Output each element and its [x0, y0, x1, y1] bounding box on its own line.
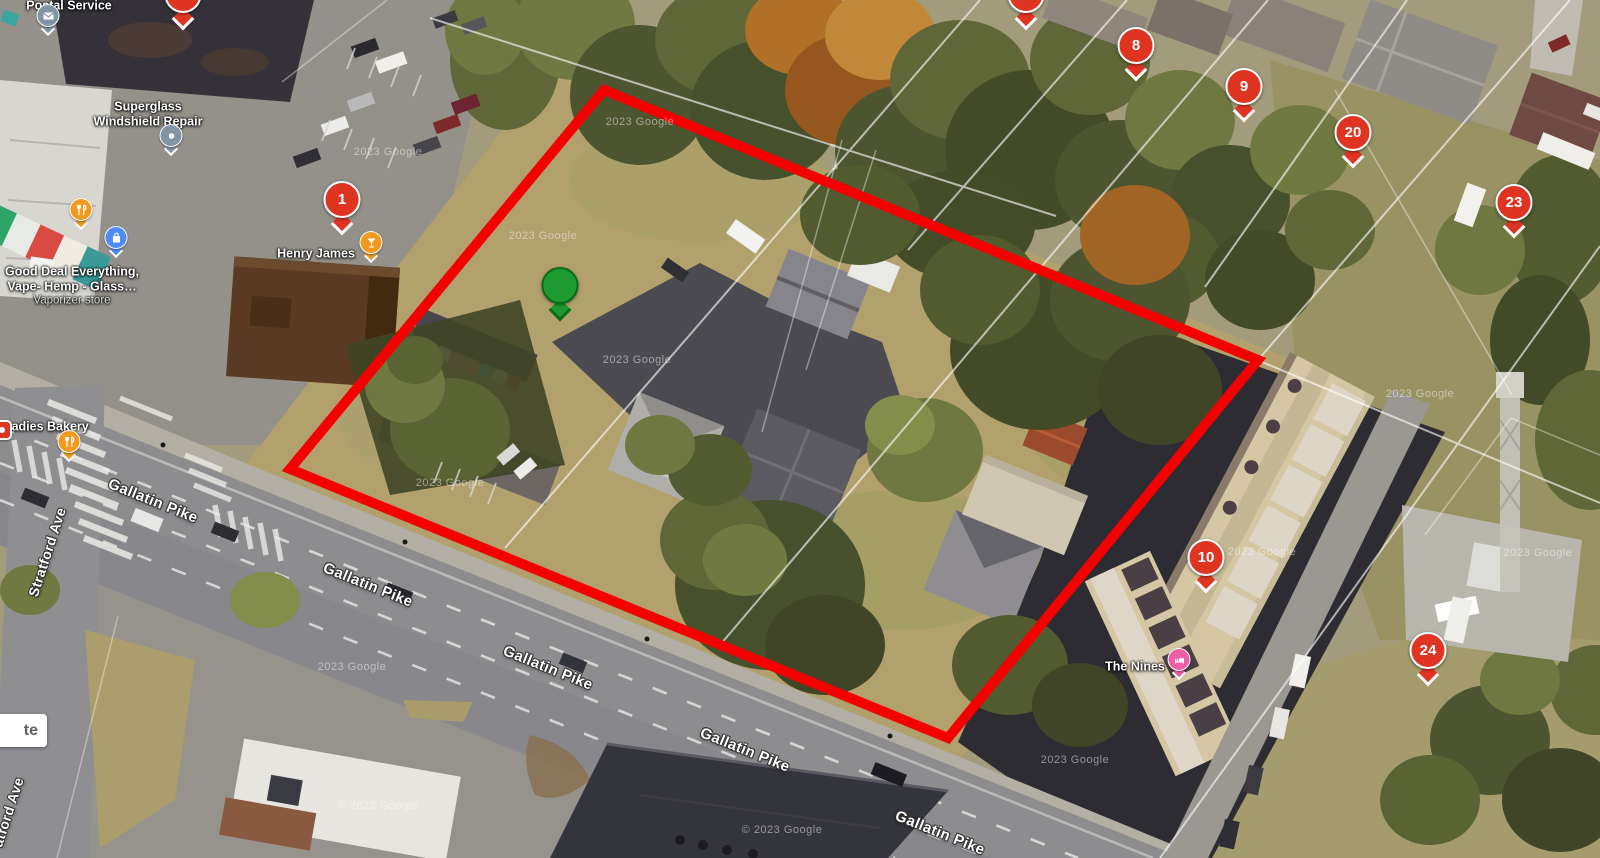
poi-label-henry-james[interactable]: Henry James: [277, 247, 355, 262]
poi-gooddeal-line2: Vape- Hemp - Glass…: [5, 279, 139, 294]
street-label-gallatin-3: Gallatin Pike: [501, 642, 596, 693]
google-watermark: 2023 Google: [1386, 388, 1455, 400]
map-pin-20[interactable]: 20: [1334, 114, 1372, 166]
map-pin-1[interactable]: 1: [323, 181, 361, 233]
poi-superglass-line1: Superglass: [94, 99, 203, 114]
street-label-gallatin-5: Gallatin Pike: [893, 807, 988, 858]
google-watermark: 2023 Google: [509, 230, 578, 242]
poi-gooddeal-line1: Good Deal Everything,: [5, 264, 139, 279]
google-watermark: © 2023 Google: [338, 800, 419, 812]
poi-pin-the-nines-lodging[interactable]: [1167, 648, 1191, 680]
street-label-gallatin-1: Gallatin Pike: [106, 475, 201, 526]
restaurant-icon: [75, 204, 87, 216]
map-pin-24[interactable]: 24: [1409, 632, 1447, 684]
map-pin-23[interactable]: 23: [1495, 184, 1533, 236]
google-watermark: 2023 Google: [1228, 546, 1297, 558]
poi-pin-postal[interactable]: [36, 4, 60, 36]
map-canvas[interactable]: 2023 Google 2023 Google 2023 Google 2023…: [0, 0, 1600, 858]
street-label-stratford: Stratford Ave: [25, 505, 69, 598]
poi-pin-superglass[interactable]: [159, 124, 183, 156]
mail-icon: [42, 10, 54, 22]
google-watermark: 2023 Google: [606, 116, 675, 128]
map-pin-8[interactable]: 8: [1117, 27, 1155, 79]
google-watermark: 2023 Google: [1041, 754, 1110, 766]
cocktail-icon: [365, 237, 377, 249]
poi-pin-sadies-restaurant[interactable]: [57, 430, 81, 462]
google-watermark: 2023 Google: [1504, 547, 1573, 559]
street-label-stratford-partial: atford Ave: [0, 775, 27, 849]
street-label-gallatin-4: Gallatin Pike: [698, 724, 793, 775]
google-watermark: 2023 Google: [354, 146, 423, 158]
street-label-gallatin-2: Gallatin Pike: [321, 559, 416, 610]
poi-pin-shopping[interactable]: [104, 226, 128, 258]
map-pin-10[interactable]: 10: [1187, 539, 1225, 591]
poi-gooddeal-subtitle: Vaporizer store: [5, 294, 139, 308]
poi-pin-partial-left[interactable]: [0, 420, 12, 440]
poi-label-the-nines[interactable]: The Nines: [1105, 660, 1165, 675]
poi-label-superglass[interactable]: Superglass Windshield Repair: [94, 99, 203, 129]
shopping-bag-icon: [110, 232, 122, 244]
dot-icon: [165, 130, 177, 142]
map-pin-partial-topcenter[interactable]: [1007, 0, 1045, 28]
google-watermark: 2023 Google: [318, 661, 387, 673]
google-watermark: © 2023 Google: [742, 824, 823, 836]
cutoff-place-label[interactable]: te: [0, 714, 47, 747]
poi-label-good-deal[interactable]: Good Deal Everything, Vape- Hemp - Glass…: [5, 264, 139, 307]
poi-pin-henry-james-bar[interactable]: [359, 231, 383, 263]
google-watermark: 2023 Google: [603, 354, 672, 366]
bed-icon: [1173, 654, 1185, 666]
poi-pin-restaurant-top[interactable]: [69, 198, 93, 230]
map-pin-partial-topleft[interactable]: [164, 0, 202, 28]
google-watermark: 2023 Google: [416, 477, 485, 489]
map-pin-9[interactable]: 9: [1225, 68, 1263, 120]
restaurant-icon: [63, 436, 75, 448]
poi-superglass-line2: Windshield Repair: [94, 114, 203, 129]
map-pin-green[interactable]: [541, 267, 579, 319]
